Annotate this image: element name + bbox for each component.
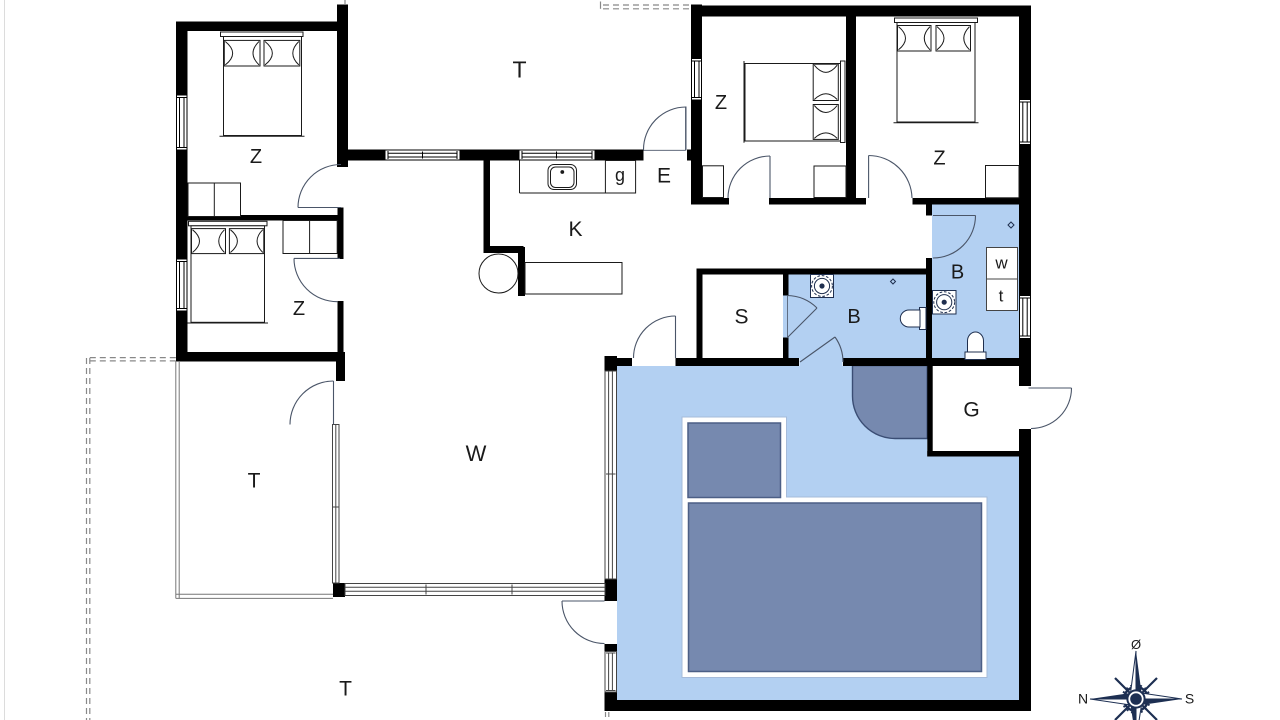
svg-text:T: T bbox=[512, 57, 526, 83]
svg-text:T: T bbox=[248, 470, 261, 493]
svg-text:Z: Z bbox=[293, 298, 305, 320]
svg-text:Z: Z bbox=[715, 92, 727, 114]
svg-text:S: S bbox=[734, 306, 748, 329]
svg-text:B: B bbox=[951, 262, 964, 284]
svg-text:S: S bbox=[1185, 691, 1194, 707]
svg-text:t: t bbox=[999, 287, 1004, 306]
svg-text:N: N bbox=[1078, 691, 1088, 707]
svg-text:T: T bbox=[339, 678, 352, 701]
svg-text:Z: Z bbox=[250, 146, 262, 168]
svg-text:G: G bbox=[963, 399, 979, 422]
svg-text:Z: Z bbox=[933, 148, 945, 170]
svg-text:B: B bbox=[847, 306, 860, 328]
svg-text:W: W bbox=[466, 441, 487, 466]
svg-text:E: E bbox=[657, 165, 671, 188]
svg-text:w: w bbox=[994, 254, 1008, 273]
svg-text:Ø: Ø bbox=[1131, 637, 1141, 652]
svg-text:K: K bbox=[568, 218, 582, 241]
svg-text:g: g bbox=[615, 165, 625, 185]
